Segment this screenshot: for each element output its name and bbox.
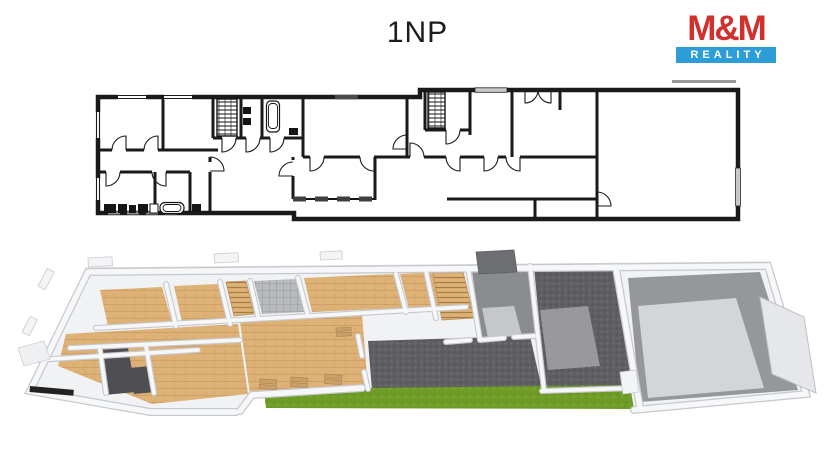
dark-window-strip [335, 95, 358, 100]
interior-walls-horizontal [98, 130, 597, 199]
fixtures-2d [104, 101, 298, 214]
outer-walls [98, 90, 738, 219]
kitchen-counter-2d [104, 204, 116, 213]
windows-2d [95, 82, 740, 214]
floorplan-2d [95, 82, 740, 220]
staircase-2d-left [217, 99, 237, 136]
doors-2d [106, 90, 611, 206]
toilet-1 [243, 107, 251, 114]
dark-wall-slab [476, 250, 517, 274]
sink-unit [289, 128, 298, 135]
wall-stub [620, 370, 639, 394]
floorplan-page: 1NP M&M REALITY [0, 0, 832, 468]
garage-gate-2d [736, 168, 741, 206]
toilet-2 [243, 118, 251, 125]
top-window-gray [475, 88, 507, 93]
floorplan-graphic [0, 0, 832, 468]
floor-bedroom3-wood [304, 274, 403, 312]
wc-unit [192, 204, 201, 212]
window-sills-west [22, 268, 54, 335]
floorplan-3d [18, 250, 816, 413]
window-sills-north [88, 251, 342, 267]
staircase-2d-right [428, 92, 445, 128]
floor-bedroom1-wood [100, 287, 172, 326]
